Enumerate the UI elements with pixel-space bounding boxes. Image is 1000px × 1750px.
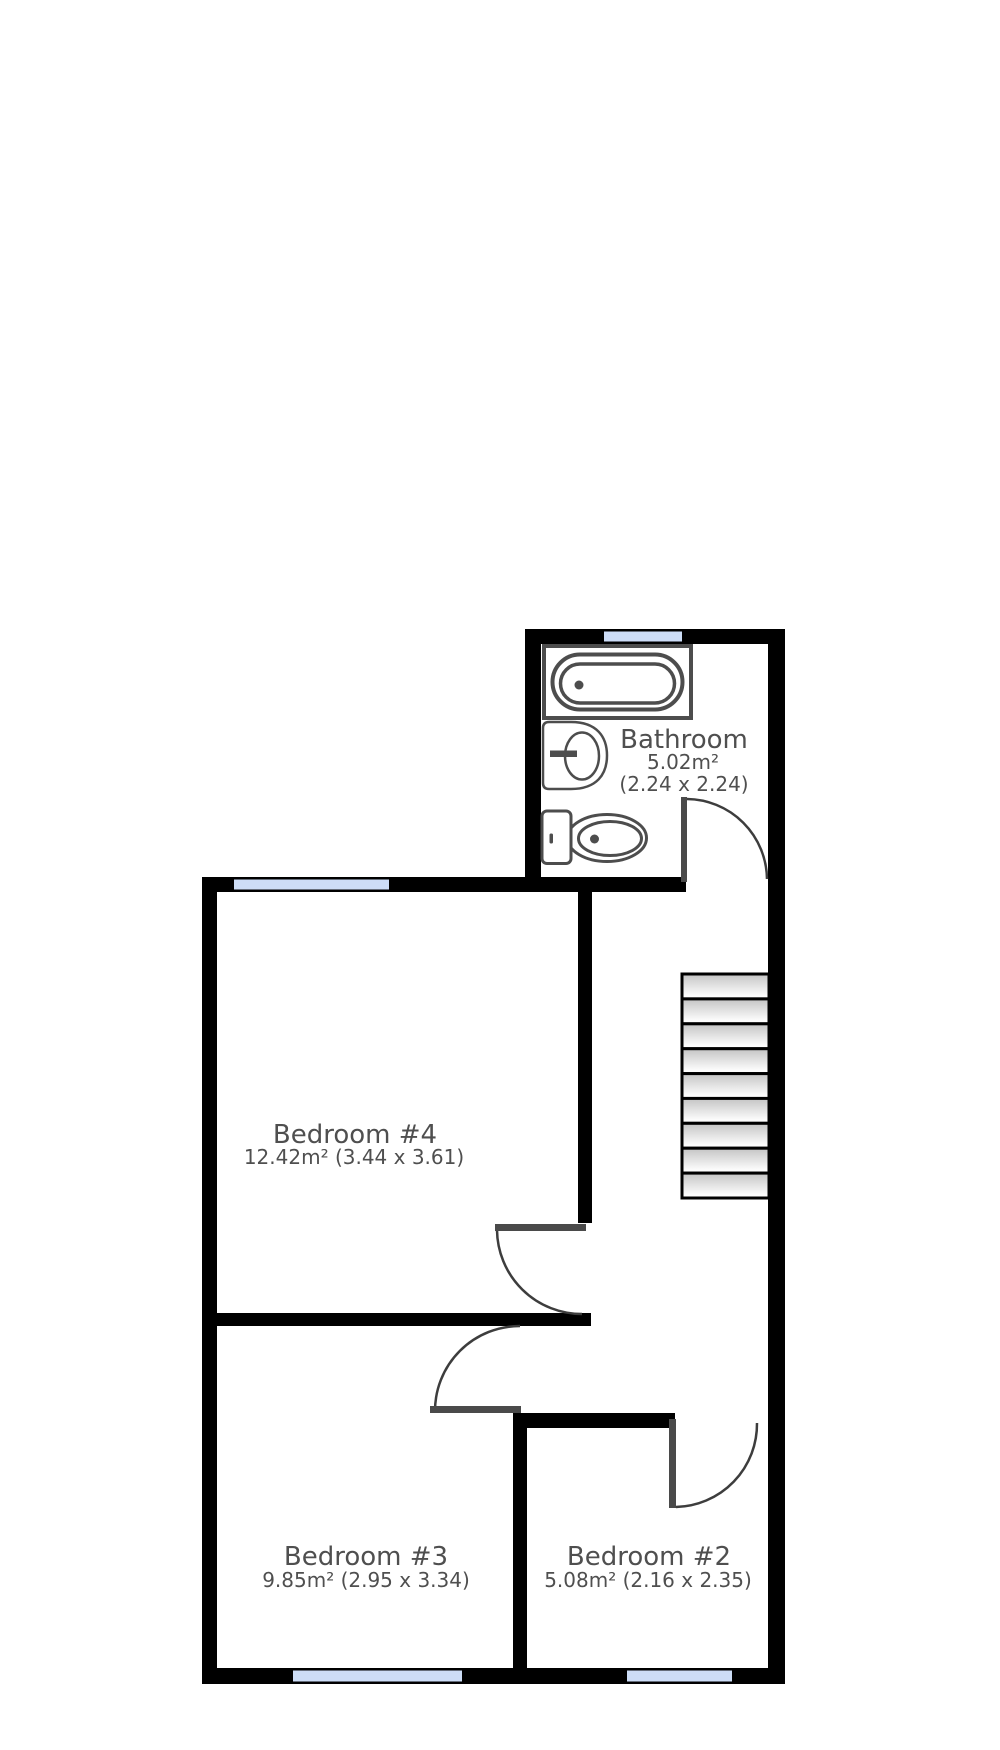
stair-tread xyxy=(682,1173,769,1198)
bedroom2-door-leaf xyxy=(669,1419,676,1508)
stair-tread xyxy=(682,1123,769,1148)
stair-tread xyxy=(682,999,769,1024)
wall-bedroom2-top xyxy=(513,1413,675,1428)
toilet-tank xyxy=(542,811,571,864)
bedroom2-door-arc xyxy=(676,1423,757,1507)
stair-tread xyxy=(682,974,769,999)
bathroom-area: 5.02m² xyxy=(647,750,719,774)
wall-bedroom4-bottom xyxy=(202,1313,591,1326)
bathroom-door-leaf xyxy=(681,797,687,882)
floor-plan-page: Bathroom 5.02m² (2.24 x 2.24) Bedroom #4… xyxy=(0,0,1000,1750)
bedroom3-details: 9.85m² (2.95 x 3.34) xyxy=(262,1568,470,1592)
wall-bathroom-left xyxy=(525,629,541,891)
window-bathroom-top xyxy=(603,631,683,643)
wall-right-exterior xyxy=(768,629,785,1684)
bedroom4-door-arc xyxy=(497,1230,582,1314)
bedroom3-door-leaf xyxy=(430,1406,521,1413)
bathtub-icon xyxy=(544,646,691,718)
wall-left-exterior xyxy=(202,877,217,1684)
wall-hallway-bedroom4 xyxy=(578,891,592,1223)
window-bedroom3-bottom xyxy=(292,1670,463,1683)
bedroom4-details: 12.42m² (3.44 x 3.61) xyxy=(244,1145,464,1169)
bedroom2-details: 5.08m² (2.16 x 2.35) xyxy=(544,1568,752,1592)
wall-bedroom3-bedroom2-divider xyxy=(513,1413,527,1668)
stair-tread xyxy=(682,1049,769,1074)
bathroom-door-arc xyxy=(687,799,767,879)
bathtub-drain xyxy=(575,681,584,690)
stair-tread xyxy=(682,1148,769,1173)
floor-plan: Bathroom 5.02m² (2.24 x 2.24) Bedroom #4… xyxy=(0,0,1000,1750)
stair-tread xyxy=(682,1024,769,1049)
toilet-icon xyxy=(542,811,647,864)
bathroom-dimensions: (2.24 x 2.24) xyxy=(619,772,748,796)
bedroom4-door-leaf xyxy=(495,1224,586,1231)
sink-tap xyxy=(550,751,577,758)
stair-tread xyxy=(682,1074,769,1099)
window-bedroom4-top xyxy=(233,879,390,891)
bedroom3-door-arc xyxy=(435,1326,520,1411)
toilet-tank-button xyxy=(550,834,554,844)
staircase xyxy=(682,974,769,1198)
stair-tread xyxy=(682,1098,769,1123)
toilet-flush-dot xyxy=(590,835,599,844)
sink-icon xyxy=(543,722,607,789)
window-bedroom2-bottom xyxy=(626,1670,733,1683)
